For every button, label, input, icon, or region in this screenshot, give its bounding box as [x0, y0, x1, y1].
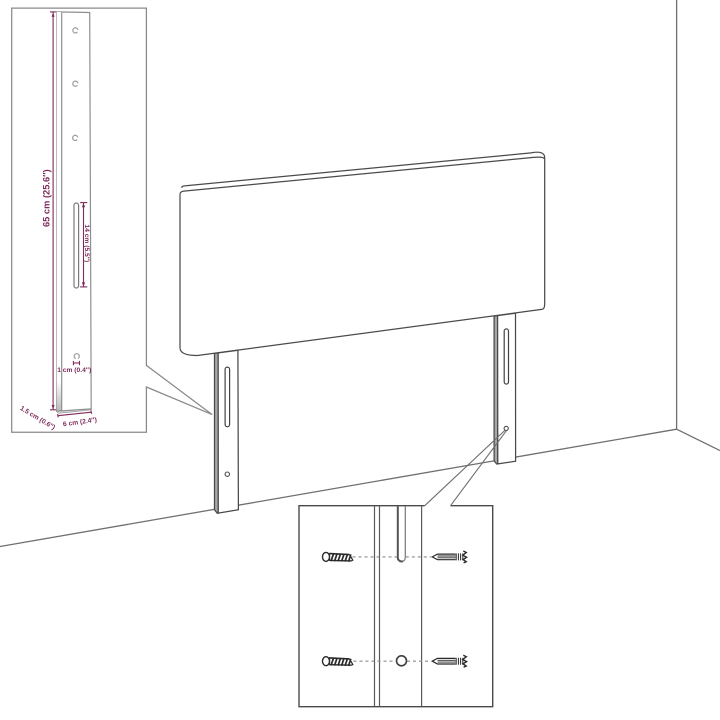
svg-text:14 cm (5.5″): 14 cm (5.5″): [83, 224, 90, 262]
svg-text:1 cm (0.4″): 1 cm (0.4″): [57, 367, 91, 374]
svg-text:65 cm (25.6″): 65 cm (25.6″): [42, 169, 52, 227]
